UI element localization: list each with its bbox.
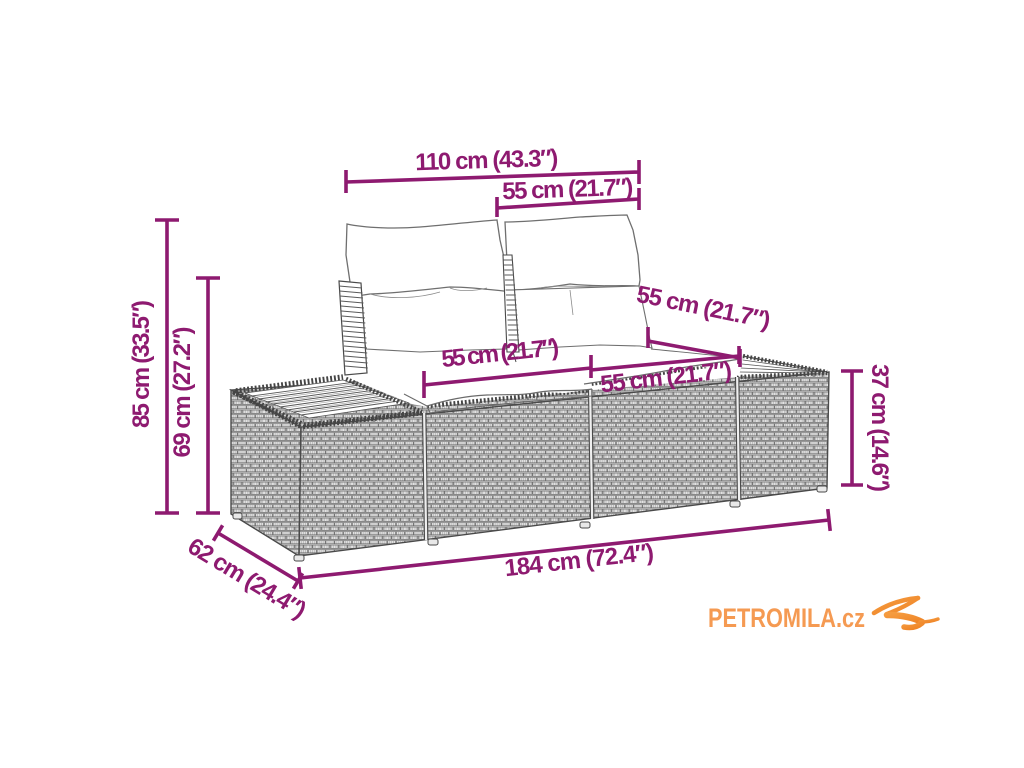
svg-text:37 cm (14.6″): 37 cm (14.6″) (866, 364, 893, 492)
svg-text:PETROMILA.cz: PETROMILA.cz (708, 603, 865, 633)
svg-text:69 cm (27.2″): 69 cm (27.2″) (169, 327, 196, 458)
svg-text:110 cm (43.3″): 110 cm (43.3″) (415, 145, 559, 176)
svg-text:85 cm (33.5″): 85 cm (33.5″) (128, 300, 155, 428)
svg-text:55 cm (21.7″): 55 cm (21.7″) (502, 174, 634, 206)
